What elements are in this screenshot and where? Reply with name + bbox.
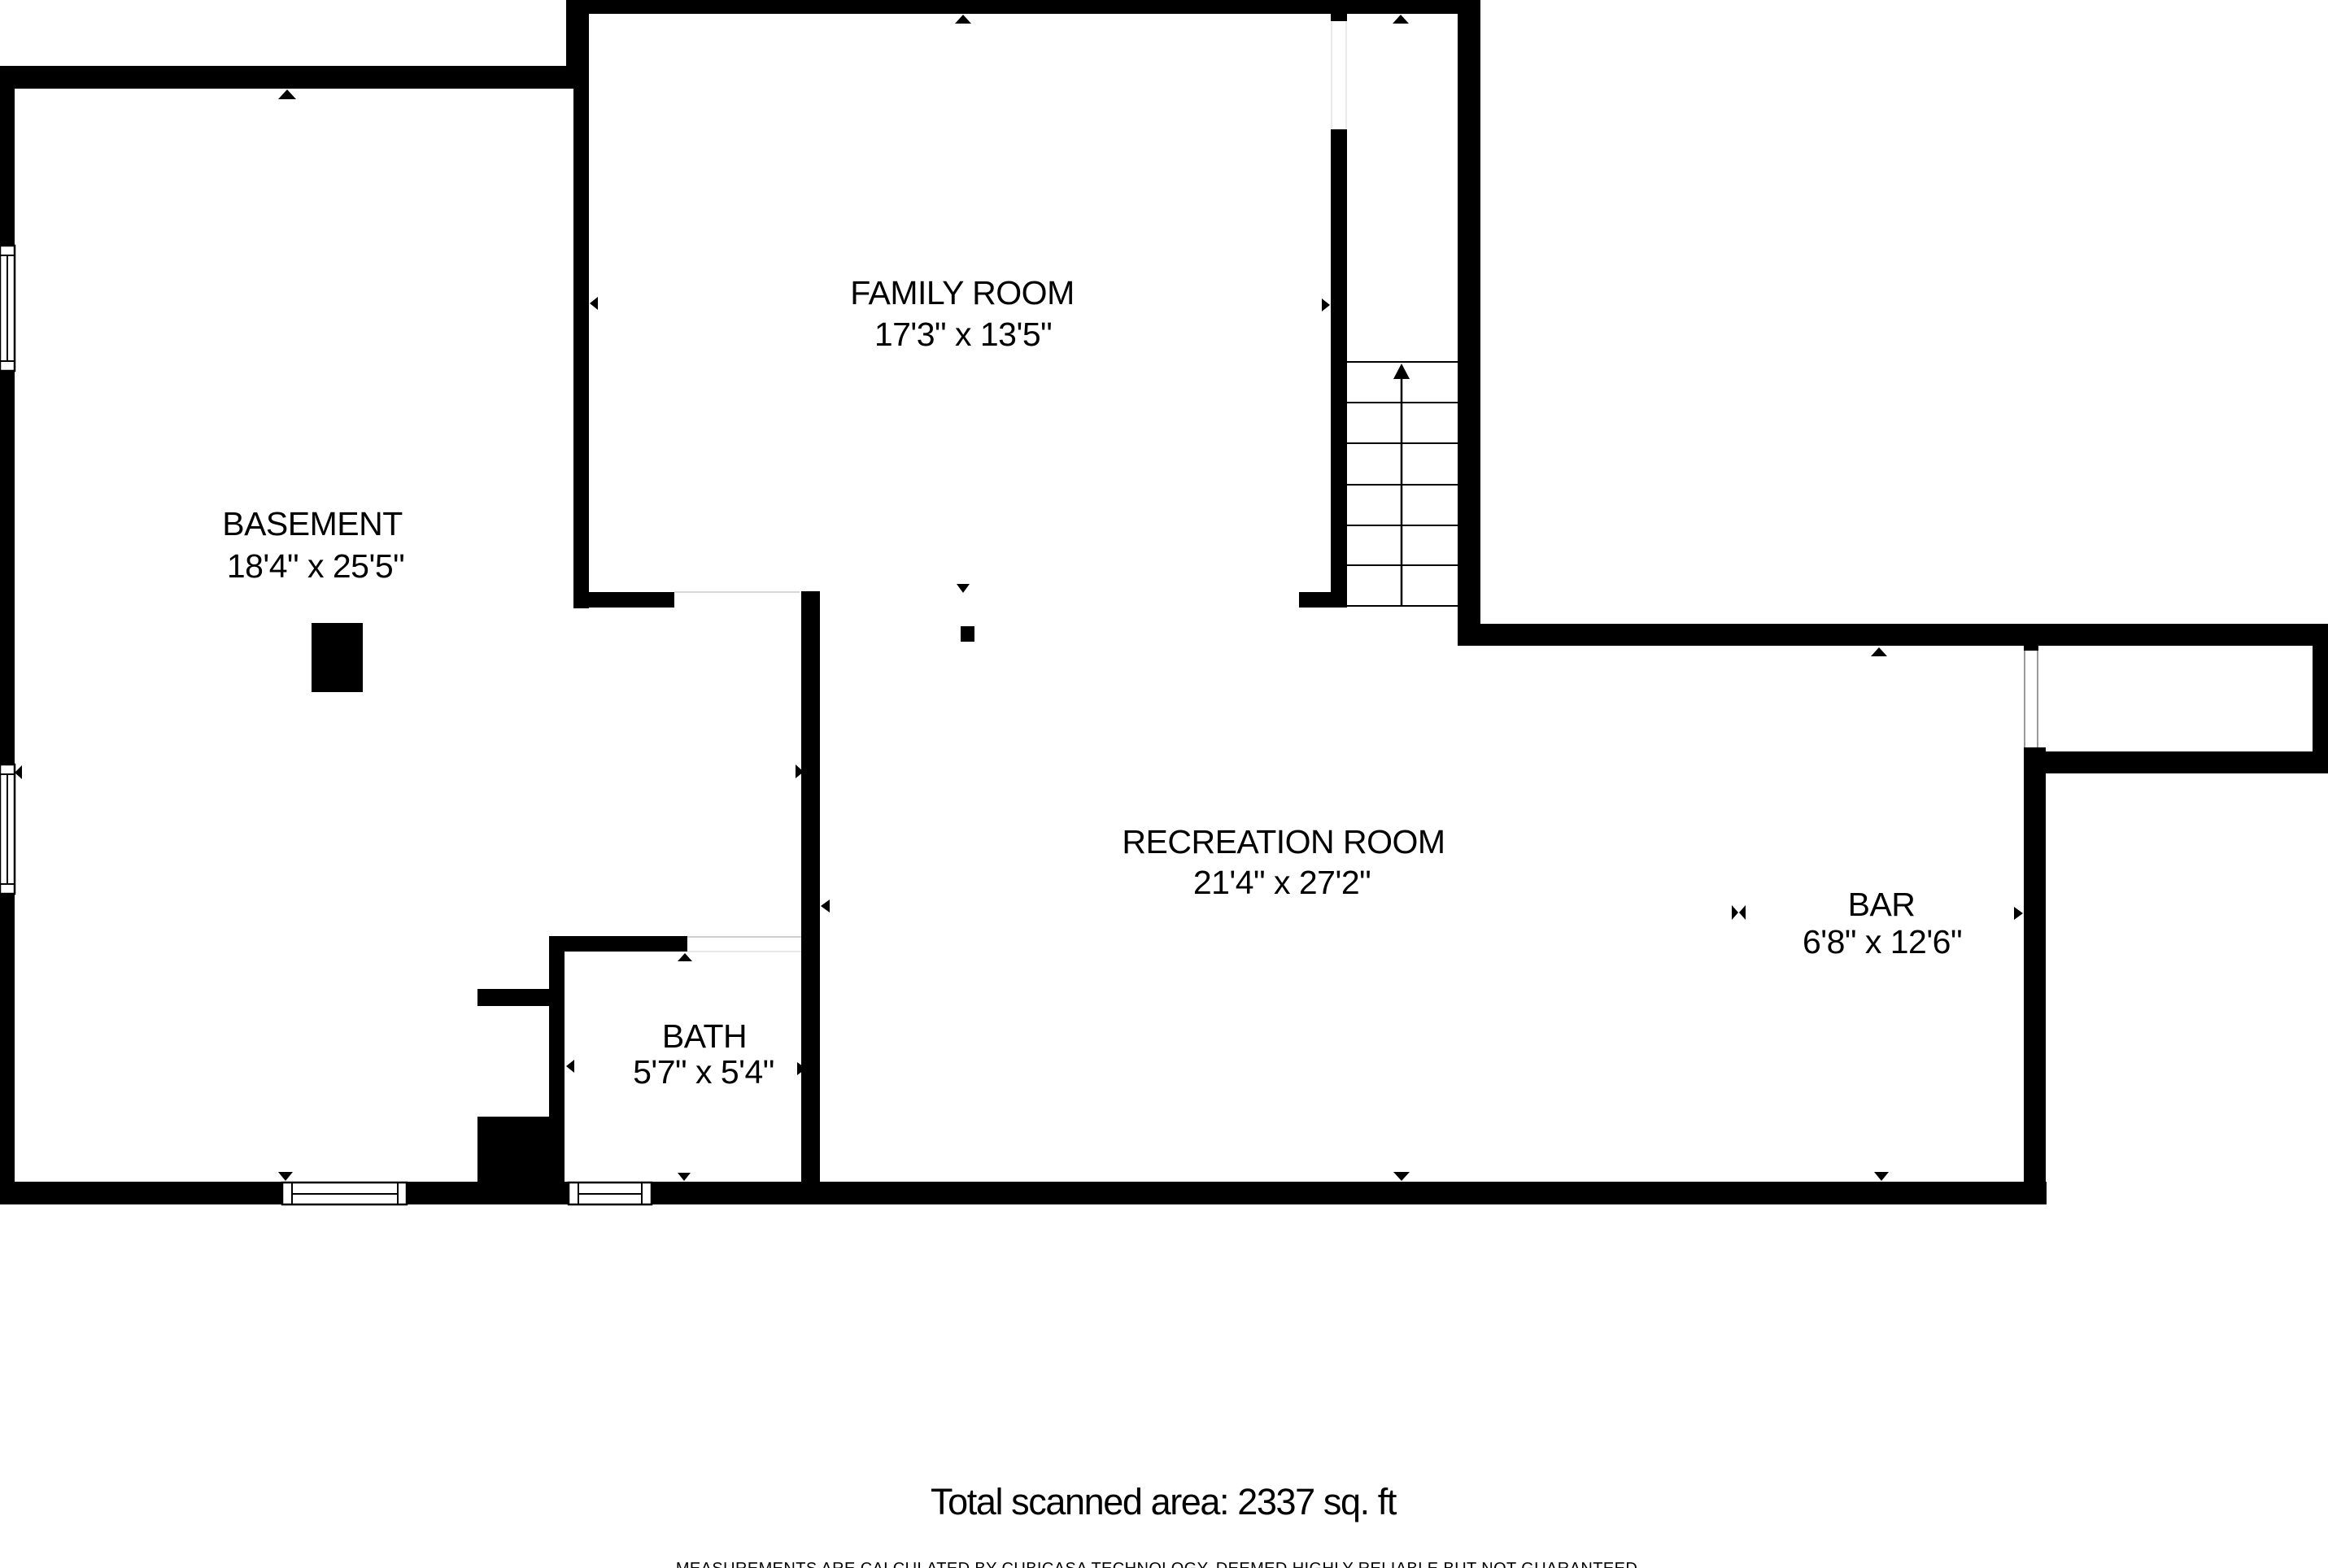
svg-text:21'4" x 27'2": 21'4" x 27'2": [1193, 864, 1371, 901]
svg-text:BASEMENT: BASEMENT: [222, 505, 403, 542]
svg-text:BATH: BATH: [662, 1017, 747, 1055]
svg-text:18'4" x 25'5": 18'4" x 25'5": [227, 547, 404, 585]
svg-text:5'7" x 5'4": 5'7" x 5'4": [633, 1053, 774, 1091]
svg-text:RECREATION ROOM: RECREATION ROOM: [1122, 823, 1445, 860]
svg-text:17'3" x 13'5": 17'3" x 13'5": [874, 316, 1052, 353]
svg-text:BAR: BAR: [1848, 886, 1916, 923]
svg-text:MEASUREMENTS ARE CALCULATED BY: MEASUREMENTS ARE CALCULATED BY CUBICASA …: [676, 1560, 1642, 1568]
svg-text:Total scanned area: 2337 sq. f: Total scanned area: 2337 sq. ft: [931, 1481, 1397, 1522]
svg-text:6'8" x 12'6": 6'8" x 12'6": [1803, 923, 1962, 960]
svg-text:FAMILY ROOM: FAMILY ROOM: [850, 274, 1074, 311]
